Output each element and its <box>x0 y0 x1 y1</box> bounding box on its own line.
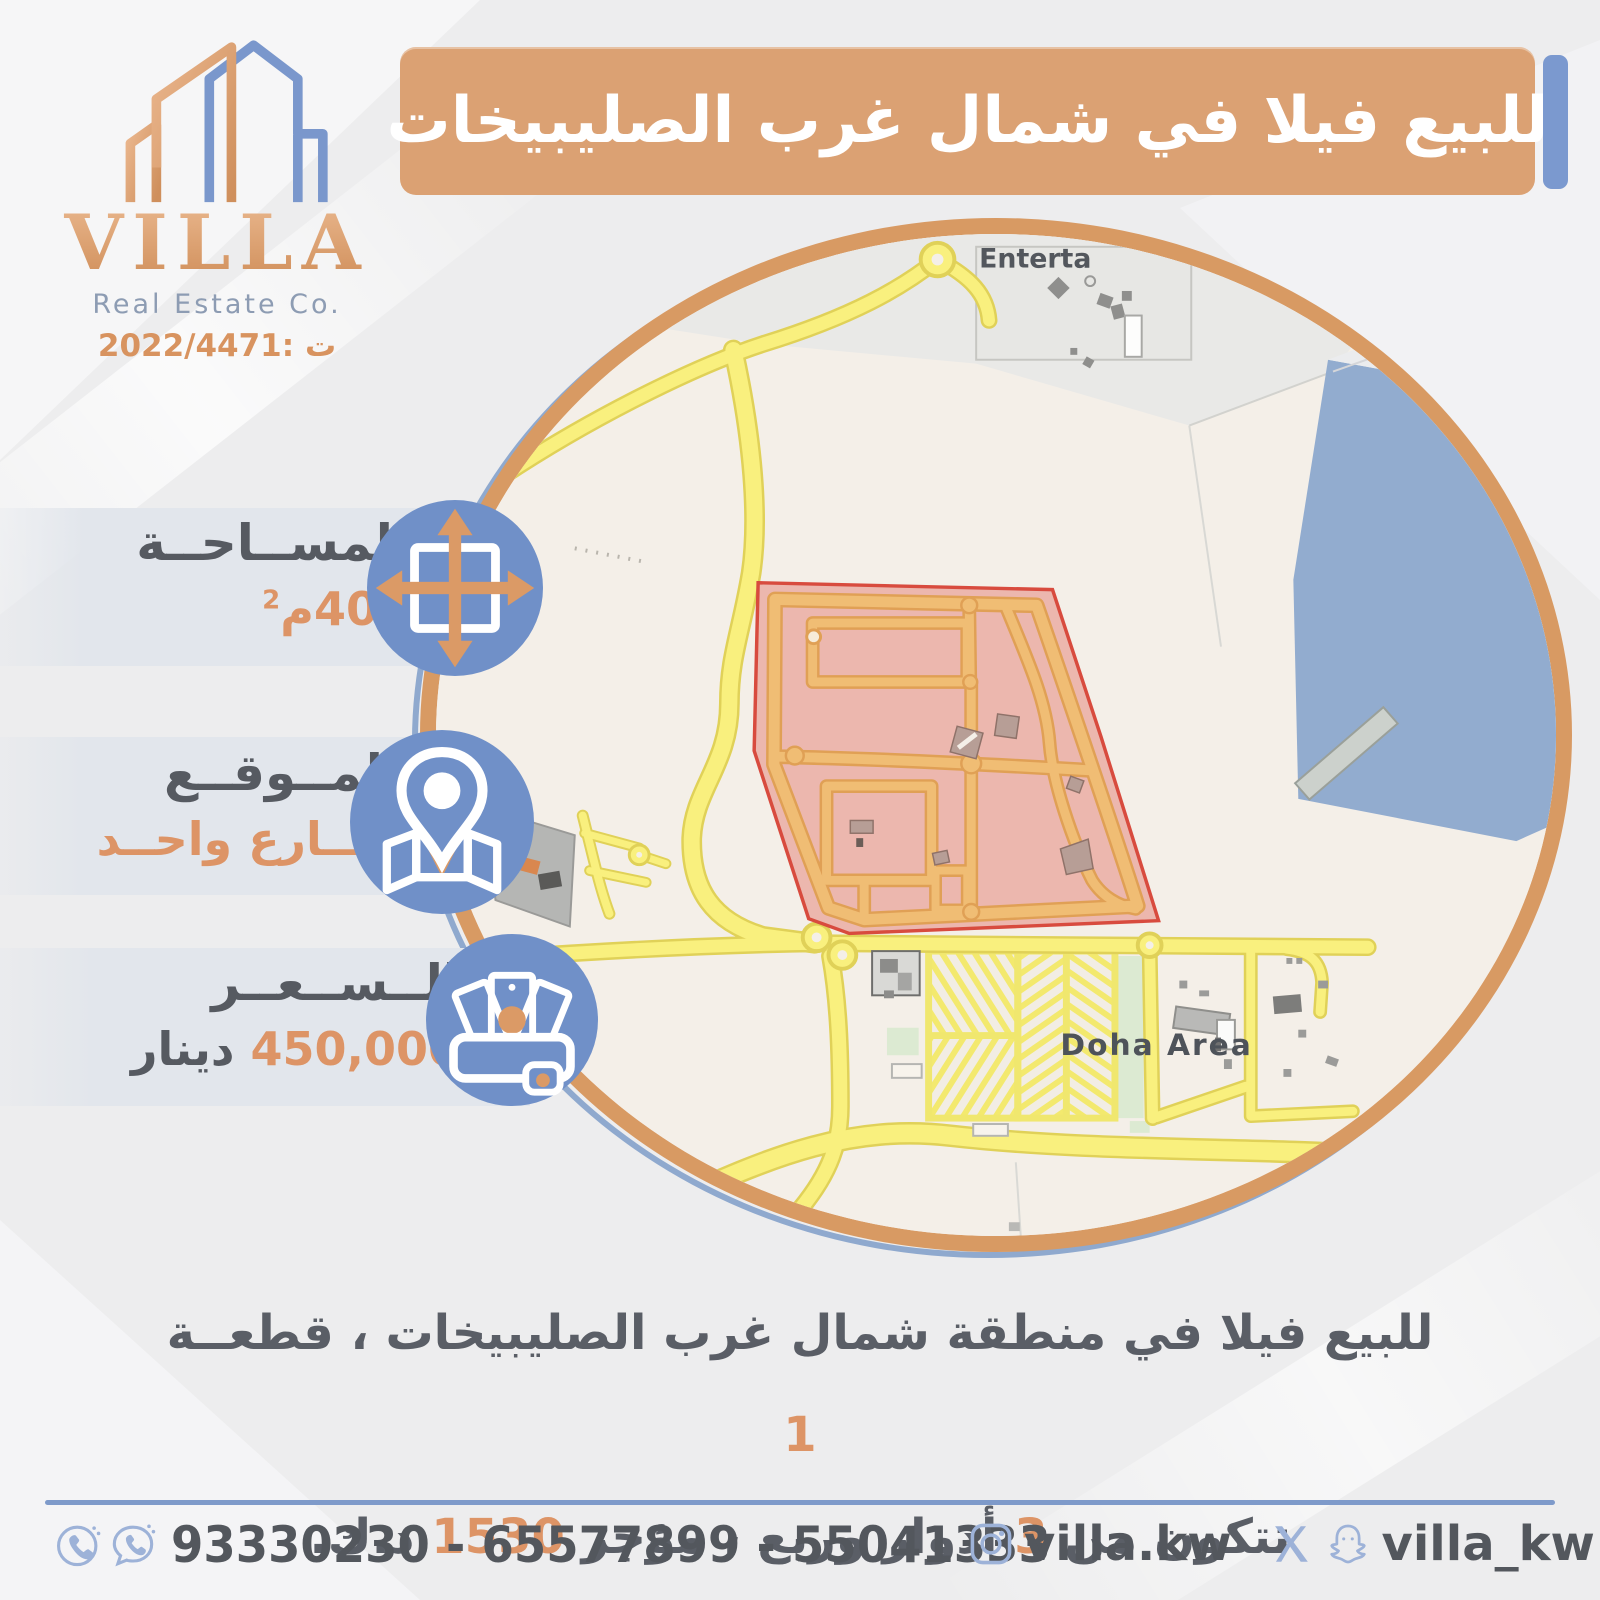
banner-accent-bar <box>1543 55 1568 189</box>
phone-contacts: 93330230 - 65577899 - 55041333 <box>55 1516 1117 1574</box>
x-icon <box>1268 1521 1314 1567</box>
price-value: 450,000 دينار <box>70 1022 460 1076</box>
location-label: المــوقــع <box>60 744 400 802</box>
company-logo: VILLA Real Estate Co. 2022/4471: ت <box>52 26 382 364</box>
phone-numbers: 93330230 - 65577899 - 55041333 <box>171 1516 1051 1574</box>
footer-divider <box>45 1500 1555 1505</box>
money-icon <box>426 934 598 1106</box>
x-snapchat-handle: villa_kw <box>1382 1516 1595 1572</box>
description-line1: للبيع فيلا في منطقة شمال غرب الصليبيخات … <box>150 1282 1450 1486</box>
price-label: الــســعــر <box>70 954 460 1012</box>
social-contacts: villa.kw villa_kw <box>968 1516 1595 1572</box>
instagram-icon <box>968 1521 1014 1567</box>
whatsapp-icon <box>109 1521 157 1569</box>
poster: VILLA Real Estate Co. 2022/4471: ت للبيع… <box>0 0 1600 1600</box>
info-area: المســاحــة 400م2 <box>60 514 410 636</box>
area-label: المســاحــة <box>60 514 410 572</box>
poster-title: للبيع فيلا في شمال غرب الصليبيخات <box>386 84 1548 158</box>
logo-name: VILLA <box>52 198 382 287</box>
logo-registration: 2022/4471: ت <box>52 328 382 364</box>
location-value: شــارع واحــد <box>60 812 400 866</box>
buildings-logo-icon <box>92 26 342 204</box>
map-graphic: Enterta <box>436 234 1556 1236</box>
instagram-handle: villa.kw <box>1024 1516 1232 1572</box>
price-badge <box>426 934 598 1106</box>
footer: 93330230 - 65577899 - 55041333 villa.kw … <box>0 1516 1600 1586</box>
logo-subtitle: Real Estate Co. <box>52 289 382 320</box>
area-value: 400م2 <box>60 582 410 636</box>
info-location: المــوقــع شــارع واحــد <box>60 744 400 866</box>
area-badge <box>367 500 543 676</box>
map-label-district: Doha Area <box>1060 1028 1252 1062</box>
map-pin-icon <box>350 730 534 914</box>
snapchat-icon <box>1324 1520 1372 1568</box>
phone-icon <box>55 1521 103 1569</box>
location-badge <box>350 730 534 914</box>
map-label-top: Enterta <box>979 244 1091 275</box>
header-banner: للبيع فيلا في شمال غرب الصليبيخات <box>400 47 1535 195</box>
info-price: الــســعــر 450,000 دينار <box>70 954 460 1076</box>
area-dimensions-icon <box>367 500 543 676</box>
